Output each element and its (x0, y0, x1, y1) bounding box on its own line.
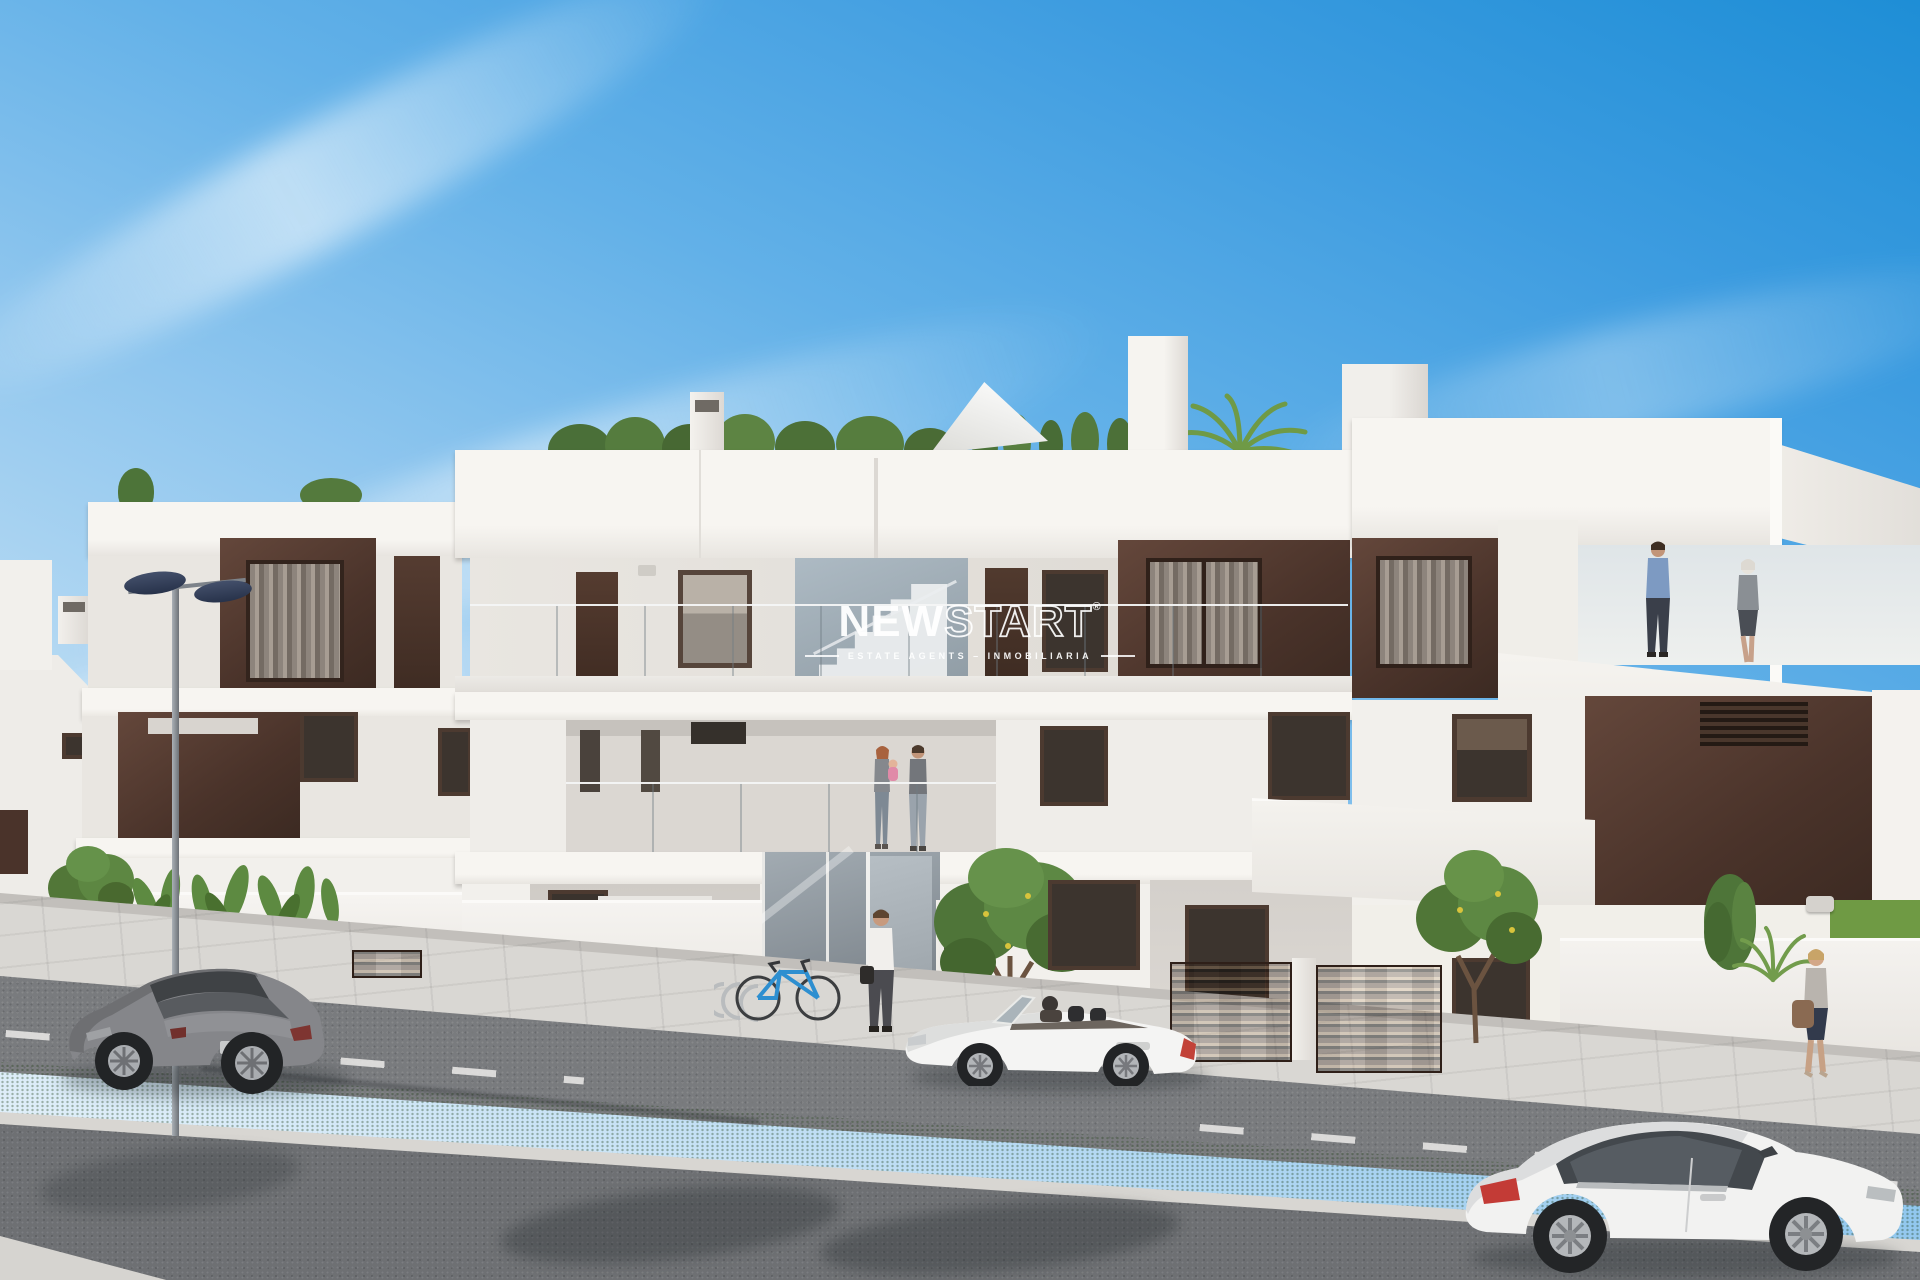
vent-grille (1700, 702, 1808, 746)
white-coupe-driving (1452, 1090, 1914, 1280)
baby-figure (888, 760, 898, 782)
wall-lamp (638, 565, 656, 576)
tagline-rule-left (805, 655, 839, 657)
left-wing-door (394, 556, 440, 688)
architectural-render-scene: NEWSTART® ESTATE AGENTS – INMOBILIARIA (0, 0, 1920, 1280)
left-wing-window-small (438, 728, 472, 796)
neighbor-brown-wall (0, 810, 28, 874)
transom-window (691, 722, 746, 744)
watermark-tagline-row: ESTATE AGENTS – INMOBILIARIA (805, 651, 1135, 661)
right-end-wall (1872, 690, 1920, 935)
chimney (58, 596, 90, 644)
tagline-rule-right (1101, 655, 1135, 657)
downspout (874, 458, 878, 558)
bicycle-blue (728, 938, 844, 1022)
watermark: NEWSTART® ESTATE AGENTS – INMOBILIARIA (830, 600, 1110, 661)
man-at-entrance (854, 908, 906, 1036)
neighbor-building-upper (0, 560, 52, 670)
right-roof-bulkhead (1498, 520, 1578, 662)
white-convertible (900, 982, 1204, 1086)
watermark-registered-icon: ® (1092, 602, 1101, 613)
taillight (170, 1027, 186, 1039)
panel-top-frame (148, 718, 258, 734)
garden-tree-right (1402, 838, 1552, 1048)
woman-roof (1724, 558, 1772, 668)
slat-fence-left (352, 950, 422, 978)
right-brown-panel-upper (1352, 538, 1498, 698)
ground-window (1048, 880, 1140, 970)
tote-bag (1792, 1000, 1814, 1028)
mid-window (1040, 726, 1108, 806)
door-handle (1700, 1194, 1726, 1201)
driver-head (1042, 996, 1058, 1012)
fascia-joint (699, 450, 701, 558)
left-wing-brown-panel (220, 538, 376, 688)
businessman-roof (1630, 540, 1686, 666)
headrest (1068, 1006, 1084, 1022)
woman-on-sidewalk (1790, 948, 1842, 1082)
watermark-brand-new: NEW (838, 600, 944, 644)
center-mid-fascia (455, 692, 1352, 720)
right-mid-window-shutter (1452, 714, 1532, 802)
left-wing-brown-panel-lower (118, 712, 300, 838)
watermark-brand: NEWSTART® (838, 600, 1101, 644)
watermark-brand-start: START (944, 600, 1092, 644)
glass-reflection (754, 846, 853, 926)
watermark-tagline: ESTATE AGENTS – INMOBILIARIA (848, 651, 1092, 661)
curtain-window (1376, 556, 1472, 668)
gray-coupe-parked (52, 955, 344, 1095)
fence-post (1292, 958, 1316, 1060)
briefcase (860, 966, 874, 984)
right-mid-window (1268, 712, 1350, 800)
right-garden-grass (1830, 900, 1920, 942)
chimney-vent (63, 602, 85, 612)
chimney-vent (695, 400, 719, 412)
driver-torso (1040, 1010, 1062, 1022)
left-wing-window (300, 712, 358, 782)
left-wing-curtain-window (246, 560, 344, 682)
